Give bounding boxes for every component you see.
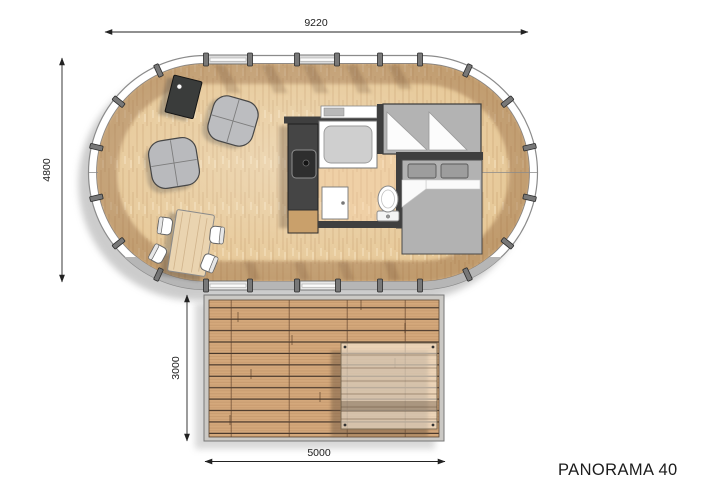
window-top-1	[208, 55, 248, 64]
vanity-unit	[322, 187, 348, 219]
window-bottom-1	[208, 281, 248, 290]
bed-sheet	[426, 180, 480, 189]
toilet	[377, 186, 399, 221]
deck	[204, 295, 444, 441]
dining-chair	[157, 217, 173, 236]
deck-table	[341, 343, 437, 429]
dining-chair	[209, 226, 225, 244]
shelf-ledge	[321, 106, 377, 118]
pillow	[408, 164, 436, 178]
pillow	[441, 164, 468, 178]
dimension-label-deck-width: 5000	[307, 447, 331, 459]
plan-title: PANORAMA 40	[558, 461, 678, 479]
shower	[319, 121, 377, 168]
wardrobe-divider-wall	[377, 104, 383, 154]
dimension-label-width: 9220	[304, 17, 328, 29]
kitchen-base-cabinet	[288, 210, 318, 233]
floor-plan-drawing: 9220 4800 3000 5000 PANORAMA 40	[0, 0, 707, 500]
window-top-2	[298, 55, 338, 64]
dimension-label-depth: 4800	[41, 158, 53, 182]
double-bed	[402, 160, 482, 254]
dimension-label-deck-depth: 3000	[170, 356, 182, 380]
window-bottom-2	[300, 281, 338, 290]
floor-plan-svg: 9220 4800 3000 5000 PANORAMA 40	[0, 0, 707, 500]
wall-bottom	[318, 221, 402, 228]
bed-head-wall	[396, 152, 483, 160]
wardrobe	[383, 104, 481, 154]
faucet	[303, 160, 309, 166]
